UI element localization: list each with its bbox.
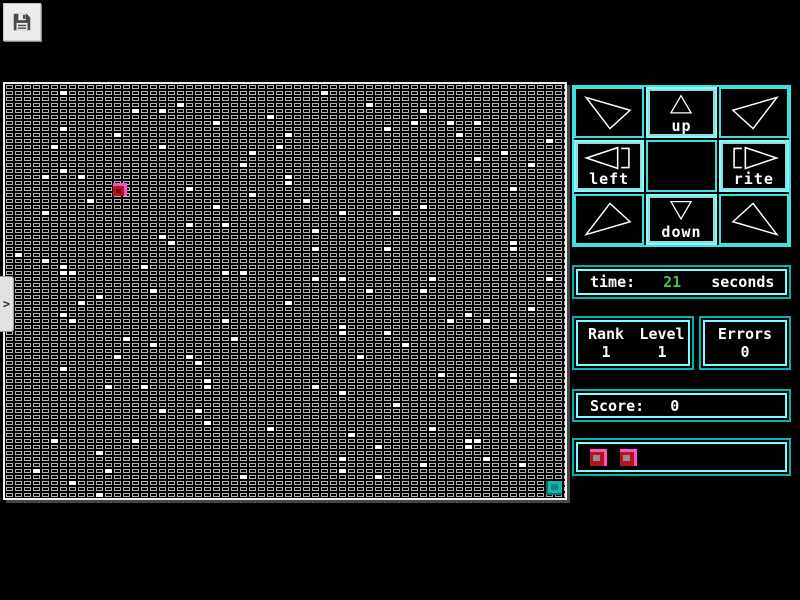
dpad-center-cell (646, 140, 716, 191)
grid-cells (5, 84, 565, 498)
errors-panel: Errors 0 (699, 316, 791, 370)
score-value: 0 (670, 397, 679, 415)
game-board[interactable] (3, 82, 567, 500)
time-value: 21 (663, 273, 681, 291)
save-button[interactable] (3, 3, 41, 41)
stats-row: Rank Level 1 1 Errors 0 (572, 316, 791, 370)
arrow-down-left-icon (579, 197, 639, 241)
arrow-right-icon (726, 145, 782, 171)
arrow-left-icon (581, 145, 637, 171)
player-square[interactable] (113, 183, 127, 196)
arrow-down-icon (658, 198, 704, 224)
rank-level-panel: Rank Level 1 1 (572, 316, 694, 370)
score-label: Score: (590, 397, 644, 415)
move-down-right-button[interactable] (719, 194, 789, 245)
level-value: 1 (634, 343, 690, 361)
arrow-up-right-icon (724, 91, 784, 135)
move-down-button[interactable]: down (646, 194, 716, 245)
move-up-left-button[interactable] (574, 87, 644, 138)
player-chip-icon (620, 449, 637, 466)
time-panel: time: 21 seconds (572, 265, 791, 299)
goal-square (546, 481, 562, 495)
move-up-button[interactable]: up (646, 87, 716, 138)
grid-row (5, 492, 565, 498)
down-label: down (661, 225, 701, 240)
rank-label: Rank (578, 325, 634, 343)
time-label: time: (590, 273, 635, 291)
game-screen: > up (0, 0, 800, 600)
rank-value: 1 (578, 343, 634, 361)
player-chip-icon (590, 449, 607, 466)
direction-pad: up left rite (572, 85, 791, 247)
arrow-up-left-icon (579, 91, 639, 135)
sidebar-expand-tab[interactable]: > (0, 276, 14, 332)
level-label: Level (634, 325, 690, 343)
floppy-disk-icon (11, 11, 33, 33)
move-right-button[interactable]: rite (719, 140, 789, 191)
move-down-left-button[interactable] (574, 194, 644, 245)
arrow-up-icon (658, 92, 704, 118)
errors-label: Errors (718, 325, 772, 343)
chevron-right-icon: > (3, 297, 10, 311)
time-unit: seconds (711, 273, 774, 291)
arrow-down-right-icon (724, 197, 784, 241)
move-up-right-button[interactable] (719, 87, 789, 138)
lives-panel (572, 438, 791, 476)
left-label: left (589, 172, 629, 187)
control-panel: up left rite (572, 85, 791, 476)
score-panel: Score: 0 (572, 389, 791, 422)
errors-value: 0 (740, 343, 749, 361)
up-label: up (671, 119, 691, 134)
move-left-button[interactable]: left (574, 140, 644, 191)
rite-label: rite (734, 172, 774, 187)
